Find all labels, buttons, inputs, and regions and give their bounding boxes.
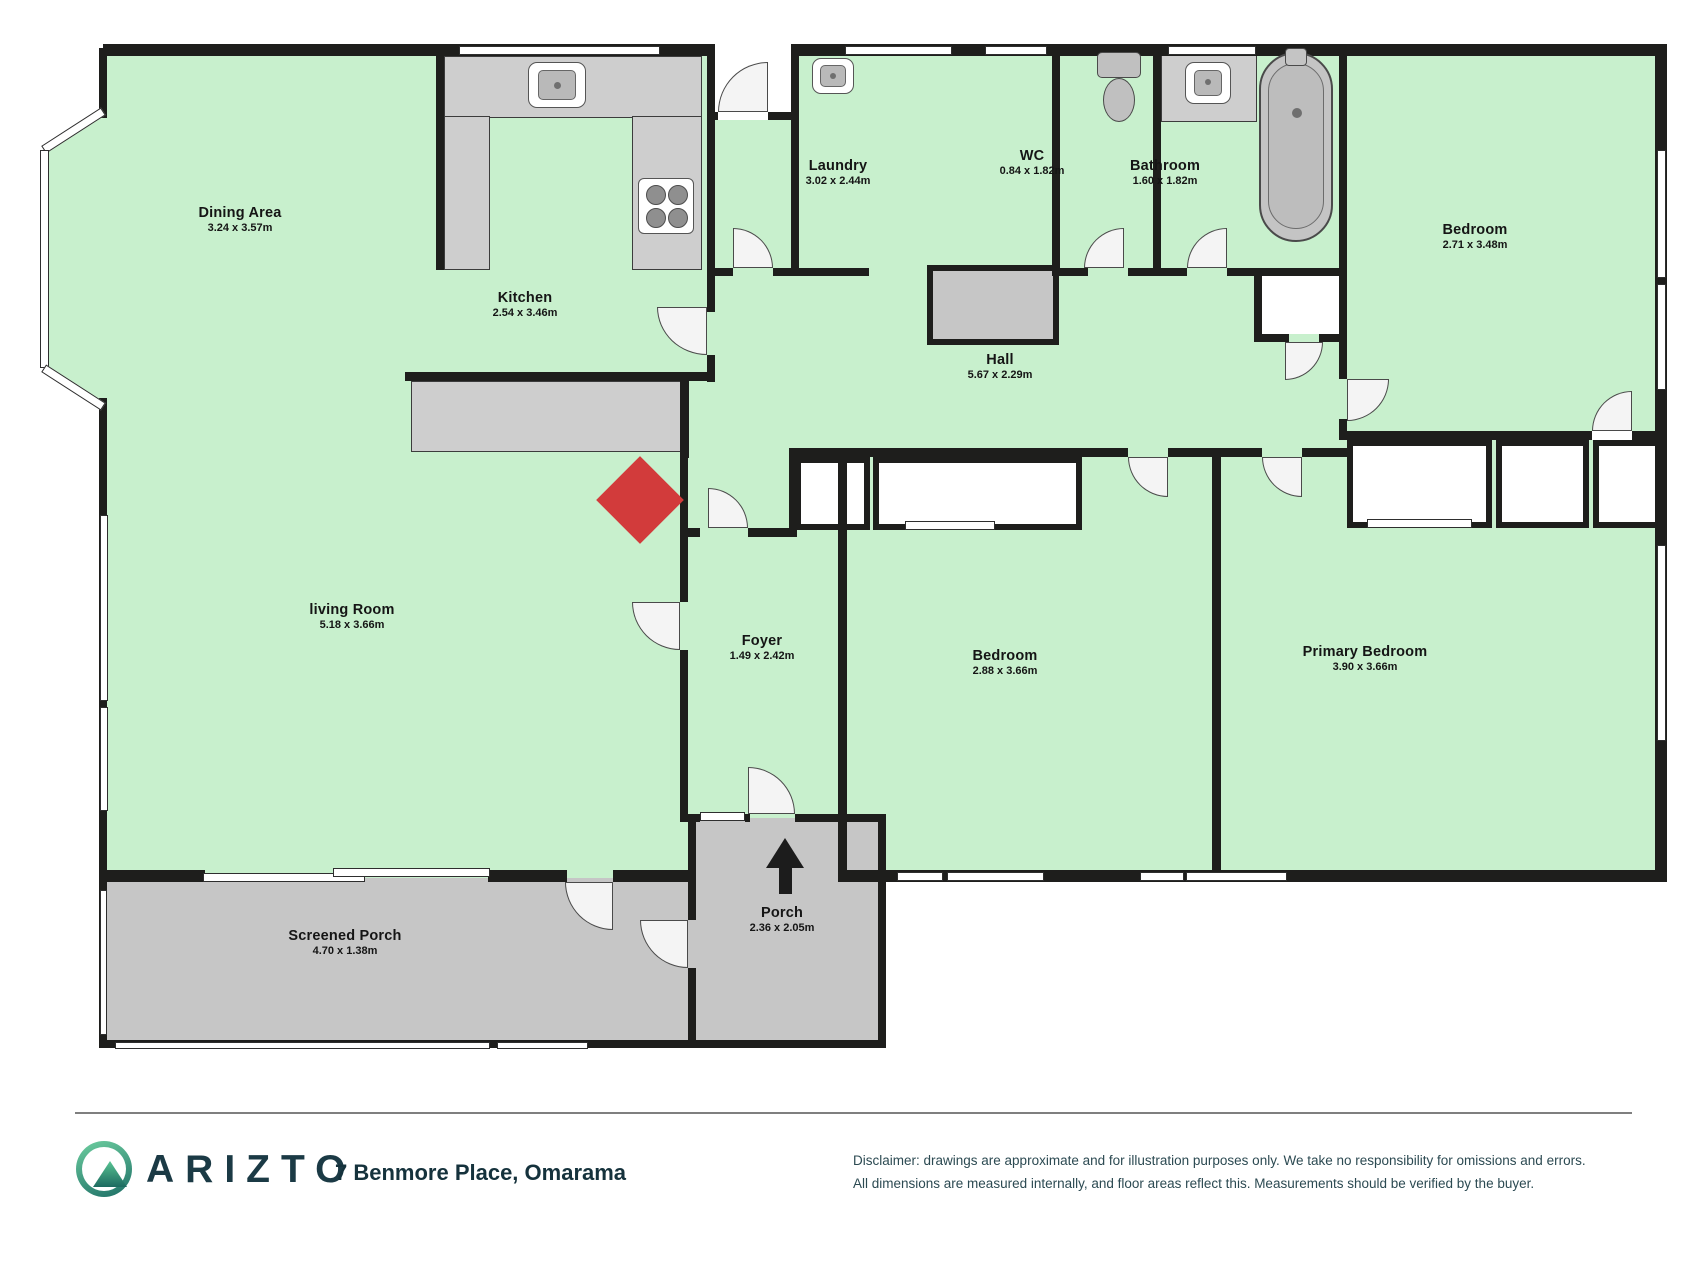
room-dims: 5.18 x 3.66m <box>309 619 394 631</box>
wall <box>1254 268 1262 342</box>
entrance-arrow-icon <box>766 838 804 868</box>
room-dims: 3.90 x 3.66m <box>1303 661 1428 673</box>
room-name: Screened Porch <box>288 928 401 944</box>
wall <box>878 814 886 1048</box>
window-bedroom-top-right-1 <box>1657 150 1666 278</box>
wall <box>795 814 886 822</box>
room-dims: 3.02 x 2.44m <box>806 175 871 187</box>
window-wc-top <box>985 46 1047 55</box>
wall <box>745 814 750 822</box>
room-name: Bedroom <box>1442 222 1507 238</box>
window-living-left-2 <box>100 707 108 811</box>
room-name: Porch <box>750 905 815 921</box>
room-label-foyer: Foyer 1.49 x 2.42m <box>730 633 795 662</box>
wall <box>1339 48 1347 379</box>
wall <box>688 814 700 822</box>
hall-storage-closet <box>927 265 1059 345</box>
window-screened-porch-left <box>100 890 107 1035</box>
room-dims: 0.84 x 1.82m <box>1000 165 1065 177</box>
wall <box>99 870 205 882</box>
wall <box>748 528 797 537</box>
closet-bedroom-top <box>1593 440 1662 528</box>
arizto-logo-inner <box>82 1147 126 1191</box>
stove-icon <box>638 178 694 234</box>
room-name: Bathroom <box>1130 158 1200 174</box>
room-dims: 2.54 x 3.46m <box>493 307 558 319</box>
kitchen-bench <box>411 381 687 452</box>
wall <box>707 112 718 120</box>
closet-bedroom-mid-slider <box>905 521 995 530</box>
mountain-icon <box>93 1161 127 1187</box>
room-label-bedroom-mid: Bedroom 2.88 x 3.66m <box>972 648 1037 677</box>
wall <box>1302 448 1353 457</box>
arizto-logo-icon <box>76 1141 132 1197</box>
room-label-bedroom-top: Bedroom 2.71 x 3.48m <box>1442 222 1507 251</box>
window-bedroom-mid-bottom-2 <box>947 872 1044 881</box>
wall <box>688 968 696 1048</box>
wall <box>1212 457 1221 882</box>
kitchen-counter-left-arm <box>444 116 490 270</box>
wall <box>688 1040 886 1048</box>
window-living-left-1 <box>100 515 108 701</box>
wall <box>680 650 688 822</box>
room-dims: 2.36 x 2.05m <box>750 922 815 934</box>
room-name: Dining Area <box>198 205 281 221</box>
brand-name: ARIZTO <box>146 1148 356 1192</box>
room-name: Primary Bedroom <box>1303 644 1428 660</box>
room-label-kitchen: Kitchen 2.54 x 3.46m <box>493 290 558 319</box>
wall <box>707 50 715 116</box>
wall <box>791 268 869 276</box>
room-dims: 1.60 x 1.82m <box>1130 175 1200 187</box>
wall <box>1153 268 1187 276</box>
wall <box>680 372 689 458</box>
wall <box>680 458 688 602</box>
window-bedroom-mid-bottom-1 <box>897 872 943 881</box>
toilet-icon <box>1096 52 1142 124</box>
room-name: WC <box>1000 148 1065 164</box>
room-name: Hall <box>968 352 1033 368</box>
window-bathroom-top <box>1168 46 1256 55</box>
entrance-arrow-stem <box>779 866 792 894</box>
room-name: living Room <box>309 602 394 618</box>
room-dims: 3.24 x 3.57m <box>198 222 281 234</box>
closet-foyer <box>795 457 870 530</box>
room-label-screened-porch: Screened Porch 4.70 x 1.38m <box>288 928 401 957</box>
window-primary-right <box>1657 545 1666 741</box>
wall <box>488 870 567 882</box>
room-label-bathroom: Bathroom 1.60 x 1.82m <box>1130 158 1200 187</box>
closet-primary-2 <box>1496 440 1589 528</box>
window-bedroom-top-right-2 <box>1657 284 1666 390</box>
room-label-hall: Hall 5.67 x 2.29m <box>968 352 1033 381</box>
room-dims: 1.49 x 2.42m <box>730 650 795 662</box>
window-primary-bottom-2 <box>1186 872 1287 881</box>
room-name: Laundry <box>806 158 871 174</box>
room-label-porch: Porch 2.36 x 2.05m <box>750 905 815 934</box>
wall <box>405 372 715 381</box>
closet-bedroom-mid <box>873 457 1082 530</box>
room-label-living: living Room 5.18 x 3.66m <box>309 602 394 631</box>
room-name: Bedroom <box>972 648 1037 664</box>
room-dims: 2.71 x 3.48m <box>1442 239 1507 251</box>
closet-under-bathroom <box>1262 276 1339 334</box>
window-kitchen-top <box>459 46 660 55</box>
living-slider-2 <box>333 868 490 877</box>
bathroom-sink-icon <box>1185 62 1231 104</box>
property-address: 7 Benmore Place, Omarama <box>335 1160 626 1186</box>
wall <box>707 120 715 312</box>
disclaimer-text: Disclaimer: drawings are approximate and… <box>853 1150 1643 1195</box>
room-dims: 2.88 x 3.66m <box>972 665 1037 677</box>
disclaimer-line-1: Disclaimer: drawings are approximate and… <box>853 1150 1643 1173</box>
wall <box>613 870 692 882</box>
room-label-dining: Dining Area 3.24 x 3.57m <box>198 205 281 234</box>
room-name: Foyer <box>730 633 795 649</box>
footer-divider <box>75 1112 1632 1114</box>
room-label-laundry: Laundry 3.02 x 2.44m <box>806 158 871 187</box>
window-porch-top <box>700 812 745 821</box>
room-label-primary: Primary Bedroom 3.90 x 3.66m <box>1303 644 1428 673</box>
window-screened-porch-bottom-2 <box>497 1042 588 1049</box>
kitchen-sink-icon <box>528 62 586 108</box>
room-dims: 5.67 x 2.29m <box>968 369 1033 381</box>
window-primary-bottom-1 <box>1140 872 1184 881</box>
floor-plan: Dining Area 3.24 x 3.57m Kitchen 2.54 x … <box>0 0 1707 1280</box>
closet-bedroom-top-door-threshold <box>1592 431 1632 440</box>
bathtub-icon <box>1259 52 1333 242</box>
laundry-sink-icon <box>812 58 854 94</box>
room-fill-bay-window <box>40 110 108 408</box>
window-screened-porch-bottom-1 <box>115 1042 490 1049</box>
closet-primary-1 <box>1347 440 1492 528</box>
bay-window-vertical <box>40 150 49 368</box>
disclaimer-line-2: All dimensions are measured internally, … <box>853 1173 1643 1196</box>
wall <box>436 50 444 270</box>
room-name: Kitchen <box>493 290 558 306</box>
room-label-wc: WC 0.84 x 1.82m <box>1000 148 1065 177</box>
wall <box>1052 268 1088 276</box>
window-laundry-top <box>845 46 952 55</box>
wall <box>707 268 733 276</box>
wall <box>789 448 797 537</box>
wall <box>791 120 799 276</box>
wall <box>1254 334 1289 342</box>
wall <box>1168 448 1262 457</box>
room-dims: 4.70 x 1.38m <box>288 945 401 957</box>
closet-primary-1-slider <box>1367 519 1472 528</box>
wall <box>688 822 696 920</box>
wall <box>1227 268 1347 276</box>
